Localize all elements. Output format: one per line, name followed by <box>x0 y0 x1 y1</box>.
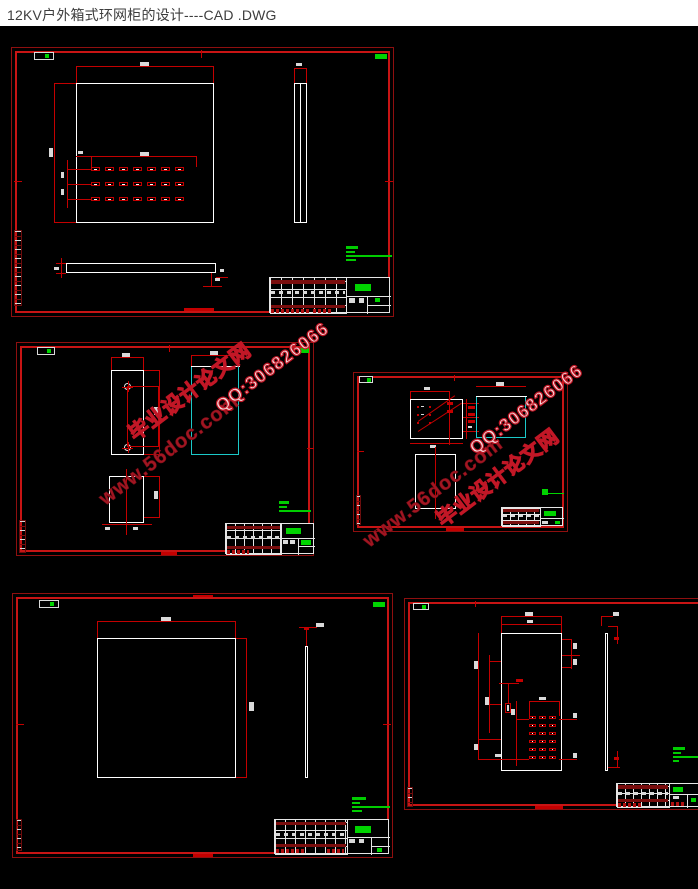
dim-text <box>133 527 138 530</box>
ext-line <box>449 391 450 399</box>
note-line <box>346 259 356 261</box>
note-line <box>352 806 390 808</box>
ext-line <box>235 621 236 638</box>
slot-hole <box>105 182 114 186</box>
ext-line <box>54 222 76 223</box>
slot-hole <box>91 197 100 201</box>
sheet-scale-box <box>37 347 55 355</box>
dim-text-red <box>468 413 475 416</box>
slot-row <box>91 197 184 201</box>
center-mark <box>357 451 364 452</box>
ext-line <box>562 655 580 656</box>
slot-hole <box>549 716 556 719</box>
cell-text <box>349 839 355 843</box>
cell-text <box>542 521 548 524</box>
slot-hole <box>147 197 156 201</box>
dim-line <box>216 277 228 278</box>
dim-text <box>573 643 577 649</box>
dim-text <box>61 189 64 195</box>
ext-line <box>478 739 501 740</box>
green-mark <box>301 540 311 545</box>
dim-line <box>102 524 152 525</box>
title-block <box>616 783 698 807</box>
slot-row <box>91 167 184 171</box>
edge-line <box>476 396 527 397</box>
dim-text <box>61 172 64 178</box>
roughness-line <box>548 493 564 494</box>
bracket-line <box>617 626 618 644</box>
dim-line <box>478 633 479 759</box>
title-block <box>269 277 390 313</box>
dim-text <box>525 612 533 616</box>
slot-hole <box>529 756 536 759</box>
slot-hole <box>175 197 184 201</box>
dim-line <box>76 66 214 67</box>
dim-arrow <box>304 628 309 630</box>
green-mark <box>422 605 426 609</box>
grid-line <box>281 538 315 539</box>
note-line <box>279 510 311 512</box>
dim-line <box>97 621 236 622</box>
center-mark <box>161 552 177 555</box>
ext-line <box>236 777 246 778</box>
louver-row <box>529 756 556 759</box>
leader-text <box>447 410 453 413</box>
green-mark <box>47 349 51 353</box>
page: 12KV户外箱式环网柜的设计----CAD .DWG <box>0 0 698 889</box>
dim-text <box>161 617 171 621</box>
ext-line <box>196 156 197 167</box>
red-hatch <box>313 309 333 313</box>
ext-line <box>489 704 501 705</box>
center-mark <box>193 595 213 597</box>
green-mark <box>375 298 380 302</box>
green-mark <box>367 378 371 382</box>
ext-line <box>562 639 571 640</box>
red-hatch <box>271 309 309 313</box>
red-strip <box>276 822 346 825</box>
dim-line <box>246 638 247 778</box>
dim-text <box>573 659 577 665</box>
drawing-number-text <box>286 528 301 534</box>
drawing-number-text <box>355 284 371 291</box>
green-mark <box>377 848 382 852</box>
slot-hole <box>161 182 170 186</box>
hole-text <box>421 414 424 415</box>
dim-text <box>511 709 515 715</box>
sheet-code-text <box>375 54 387 59</box>
slot-hole <box>175 182 184 186</box>
center-mark <box>184 308 214 311</box>
note-line <box>673 752 681 754</box>
dim-line <box>466 399 467 439</box>
dim-text <box>539 697 546 700</box>
slot-hole <box>529 740 536 743</box>
dim-line <box>67 199 91 200</box>
sheet-code-text <box>373 602 385 607</box>
dim-text <box>154 491 158 499</box>
cell-text <box>359 298 364 303</box>
ext-line <box>76 66 77 83</box>
slot-hole <box>133 167 142 171</box>
sheet-4 <box>12 593 393 858</box>
dim-text <box>49 148 53 157</box>
dim-text-red <box>516 679 523 682</box>
slot-hole <box>549 740 556 743</box>
tech-notes <box>279 501 311 514</box>
dim-text <box>474 744 478 750</box>
text-row <box>503 515 539 517</box>
louver-row <box>529 724 556 727</box>
dim-text <box>296 63 302 66</box>
ext-line <box>529 701 530 716</box>
slot-hole <box>133 197 142 201</box>
page-title: 12KV户外箱式环网柜的设计----CAD .DWG <box>7 5 277 25</box>
ext-line <box>54 83 76 84</box>
dim-text <box>316 623 324 627</box>
slot-hole <box>105 167 114 171</box>
ext-line <box>294 68 295 83</box>
green-mark <box>555 521 560 524</box>
leader-text <box>447 402 453 405</box>
dim-line <box>571 639 572 669</box>
grid-line <box>347 837 390 838</box>
hole-text <box>421 406 424 407</box>
red-strip <box>271 280 345 284</box>
red-strip <box>227 546 280 549</box>
drawing-number-text <box>673 787 683 792</box>
red-hatch <box>671 802 685 806</box>
dim-line <box>516 701 517 766</box>
dim-line <box>501 624 562 625</box>
slot-hole <box>91 167 100 171</box>
ext-line <box>306 68 307 83</box>
sheet-1 <box>11 47 394 317</box>
text-row <box>618 792 668 795</box>
sheet-scale-box <box>413 603 429 610</box>
drawing-number-text <box>544 511 556 516</box>
slot-hole <box>539 748 546 751</box>
revision-strip <box>356 495 361 525</box>
slot-hole <box>529 716 536 719</box>
dim-line <box>91 156 196 157</box>
dim-text <box>613 612 619 616</box>
dim-text <box>140 62 149 66</box>
note-line <box>346 255 392 257</box>
sheet-scale-box <box>359 376 373 383</box>
slot-hole <box>105 197 114 201</box>
dim-text <box>573 753 577 758</box>
center-mark <box>383 724 391 725</box>
titlebar: 12KV户外箱式环网柜的设计----CAD .DWG <box>0 0 698 26</box>
dim-line <box>54 83 55 223</box>
ext-line <box>144 517 159 518</box>
red-hatch <box>327 849 344 853</box>
ext-line <box>236 638 246 639</box>
bottom-view-outline <box>66 263 216 273</box>
slot-hole <box>539 740 546 743</box>
revision-strip <box>19 520 26 553</box>
grid-line <box>298 546 315 547</box>
side-view-outline <box>305 646 308 778</box>
slot-hole <box>539 724 546 727</box>
drawing-number-text <box>355 826 371 833</box>
handle-slot-line <box>507 705 509 711</box>
text-row <box>271 291 345 294</box>
grid-line <box>367 305 391 306</box>
dim-line <box>508 683 509 703</box>
title-block <box>501 507 563 526</box>
dim-line <box>476 386 526 387</box>
louver-row <box>529 748 556 751</box>
hole <box>429 414 431 416</box>
slot-hole <box>539 716 546 719</box>
dim-arrow <box>614 637 619 640</box>
red-strip <box>271 305 345 308</box>
tech-notes <box>673 747 698 764</box>
dim-line <box>56 263 66 264</box>
slot-row <box>91 182 184 186</box>
slot-hole <box>133 182 142 186</box>
hole <box>417 422 419 424</box>
dim-text <box>468 426 472 428</box>
slot-hole <box>119 167 128 171</box>
dim-text-red <box>468 406 475 409</box>
dim-text <box>220 269 224 272</box>
dim-text <box>495 754 501 757</box>
dim-text-red <box>468 420 475 423</box>
center-mark <box>475 601 476 607</box>
dim-line <box>499 683 519 684</box>
grid-line <box>669 784 670 808</box>
louver-row <box>529 716 556 719</box>
louver-row <box>529 732 556 735</box>
title-block <box>274 819 389 854</box>
slot-hole <box>529 748 536 751</box>
sheet-5 <box>404 598 698 810</box>
cell-text <box>283 540 288 544</box>
dim-line <box>211 273 212 287</box>
center-mark <box>454 375 455 381</box>
cell-text <box>349 298 355 303</box>
text-row <box>276 833 346 836</box>
ext-line <box>559 701 560 716</box>
slot-hole <box>147 167 156 171</box>
slot-hole <box>91 182 100 186</box>
green-mark <box>691 798 696 802</box>
ext-line <box>213 66 214 83</box>
dim-line <box>601 616 613 617</box>
dim-text <box>249 702 254 711</box>
dim-line <box>76 156 91 157</box>
note-line <box>279 501 289 504</box>
edge-line <box>300 84 301 222</box>
dim-arrow <box>614 757 619 760</box>
center-mark <box>385 181 393 182</box>
hole <box>417 406 419 408</box>
grid-line <box>346 296 391 297</box>
dim-line <box>478 759 516 760</box>
note-line <box>673 747 685 750</box>
dim-line <box>159 476 160 518</box>
sheet-scale-box <box>39 600 59 608</box>
note-line <box>279 506 287 508</box>
hole <box>417 414 419 416</box>
red-strip <box>503 521 539 524</box>
note-line <box>352 797 366 800</box>
dim-line <box>67 169 91 170</box>
revision-strip <box>16 819 22 851</box>
tech-notes <box>346 246 392 263</box>
grid-line <box>281 524 282 555</box>
revision-strip <box>407 787 413 807</box>
dim-line <box>559 759 577 760</box>
slot-hole <box>529 732 536 735</box>
red-hatch <box>618 803 642 807</box>
center-mark <box>169 345 170 352</box>
dim-text <box>474 661 478 669</box>
dim-line <box>449 399 450 445</box>
center-mark <box>14 181 22 182</box>
grid-line <box>669 794 698 795</box>
ext-line <box>111 357 112 370</box>
red-strip <box>618 785 668 789</box>
dim-line <box>410 443 463 444</box>
dim-line <box>529 701 559 702</box>
ext-line <box>143 357 144 370</box>
ext-line <box>562 667 571 668</box>
dim-text <box>424 387 430 390</box>
ext-line <box>410 391 411 399</box>
note-line <box>346 251 355 253</box>
slot-hole <box>161 167 170 171</box>
slot-hole <box>549 732 556 735</box>
dim-line <box>61 258 62 278</box>
cell-text <box>359 839 364 843</box>
sheet-scale-box <box>34 52 54 60</box>
red-strip <box>618 799 668 802</box>
dim-line <box>501 616 562 617</box>
slot-hole <box>119 197 128 201</box>
dim-text <box>573 713 577 718</box>
slot-hole <box>549 724 556 727</box>
slot-hole <box>161 197 170 201</box>
slot-hole <box>539 756 546 759</box>
dim-text <box>122 353 130 357</box>
grid-line <box>687 794 688 808</box>
ext-line <box>516 759 529 760</box>
slot-hole <box>549 748 556 751</box>
red-strip <box>227 526 280 529</box>
cell-text <box>673 796 679 799</box>
green-mark <box>45 54 49 58</box>
ext-line <box>144 370 159 371</box>
slot-hole <box>539 732 546 735</box>
red-hatch <box>276 849 306 853</box>
center-mark <box>193 854 213 857</box>
slot-hole <box>529 724 536 727</box>
red-strip <box>503 509 539 512</box>
dim-text <box>105 527 110 530</box>
dim-text <box>140 152 149 156</box>
dim-text <box>215 278 220 281</box>
ext-line <box>489 661 501 662</box>
dim-text <box>527 620 533 623</box>
note-line <box>673 756 698 758</box>
grid-line <box>371 846 390 847</box>
side-view-outline <box>605 633 608 771</box>
slot-hole <box>147 182 156 186</box>
slot-hole <box>175 167 184 171</box>
title-block <box>225 523 314 554</box>
dim-text <box>496 382 504 386</box>
hole <box>429 406 431 408</box>
dim-line <box>559 719 577 720</box>
note-line <box>346 246 358 249</box>
dim-line <box>203 286 222 287</box>
slot-hole <box>549 756 556 759</box>
note-line <box>673 760 679 762</box>
green-mark <box>50 602 54 606</box>
dim-line <box>489 655 490 733</box>
dim-line <box>111 357 144 358</box>
ext-line <box>97 621 98 638</box>
louver-row <box>529 740 556 743</box>
red-hatch <box>227 550 249 554</box>
center-mark <box>307 448 314 449</box>
ext-line <box>516 719 529 720</box>
dim-text <box>78 151 83 154</box>
slot-hole <box>119 182 128 186</box>
ext-line <box>91 156 92 167</box>
roughness-symbol <box>542 489 548 495</box>
text-row <box>227 536 280 539</box>
dim-line <box>410 391 449 392</box>
grid-line <box>540 518 564 519</box>
note-line <box>352 810 362 812</box>
cell-text <box>290 540 295 544</box>
front-view-outline <box>97 638 236 778</box>
center-mark <box>201 50 202 58</box>
revision-strip <box>14 230 22 306</box>
center-mark <box>16 724 24 725</box>
note-line <box>352 802 360 804</box>
ext-line <box>191 355 192 366</box>
bracket-line <box>608 767 620 768</box>
dim-line <box>56 273 66 274</box>
dim-text <box>485 697 489 705</box>
dim-line <box>67 184 91 185</box>
dim-text <box>54 267 59 270</box>
center-mark <box>535 806 563 809</box>
ext-line <box>601 616 602 626</box>
tech-notes <box>352 797 390 814</box>
red-strip <box>276 844 346 847</box>
